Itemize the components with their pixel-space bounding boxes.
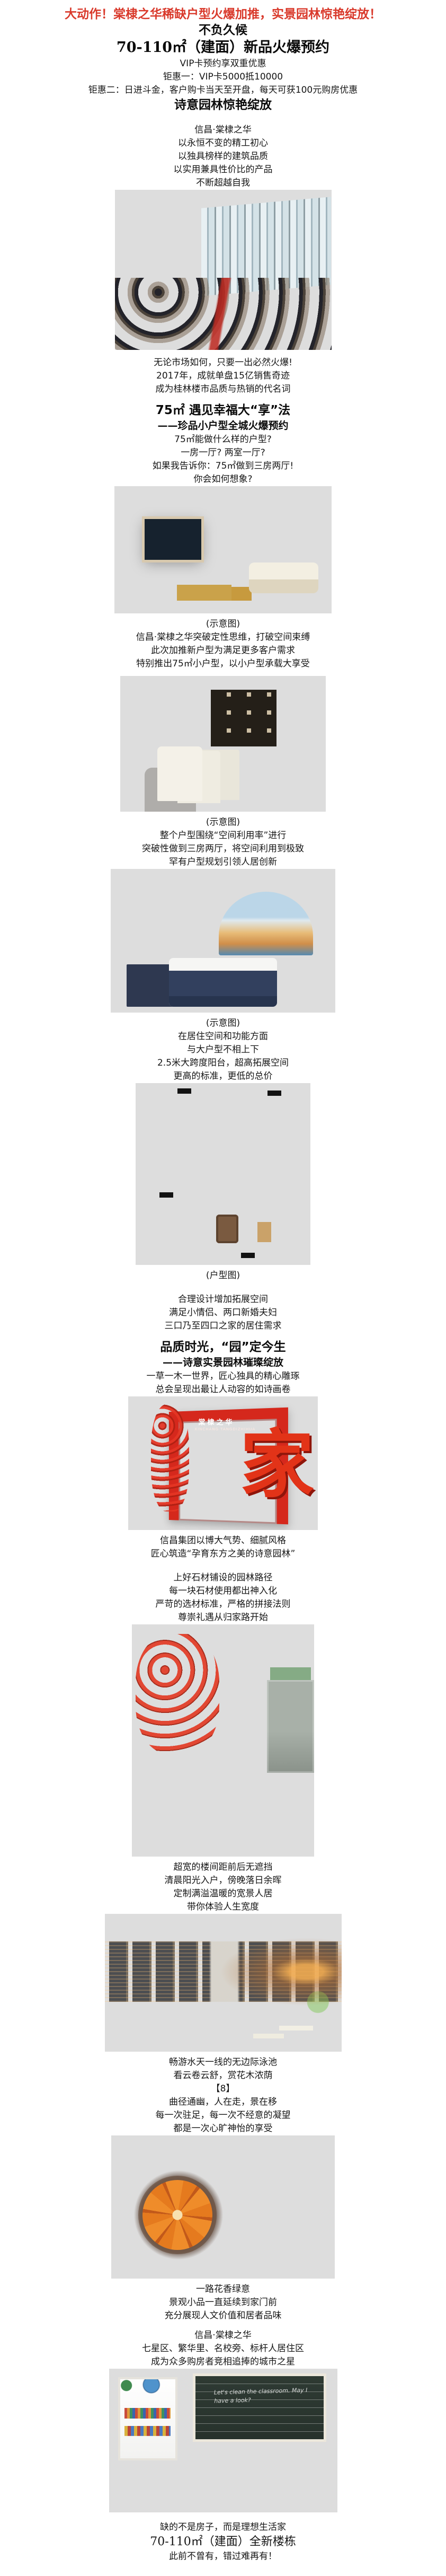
- spacer: [0, 1857, 446, 1861]
- body-line-area: 70-110㎡（建面）全新楼栋: [0, 2534, 446, 2550]
- body-line: 匠心筑造“孕育东方之美的诗意园林”: [0, 1548, 446, 1561]
- body-line: 清晨阳光入户，傍晚落日余晖: [0, 1874, 446, 1887]
- spacer: [0, 1333, 446, 1339]
- body-line: 都是一次心旷神怡的享受: [0, 2122, 446, 2135]
- photo-aerial-pool[interactable]: [111, 2135, 335, 2279]
- heading-75-enjoy: 75㎡ 遇见幸福大“享”法: [0, 402, 446, 418]
- body-line: 不断超越自我: [0, 177, 446, 190]
- spacer: [0, 1265, 446, 1269]
- body-line: 定制满溢温暖的宽景人居: [0, 1887, 446, 1901]
- image-caption: (示意图): [0, 1017, 446, 1030]
- body-line: 更高的标准，更低的总价: [0, 1070, 446, 1083]
- body-line: 钜惠一：VIP卡5000抵10000: [0, 71, 446, 84]
- body-line: 信昌·棠棣之华: [0, 2329, 446, 2342]
- body-line: 每一块石材使用都出神入化: [0, 1585, 446, 1598]
- body-line: 七星区、繁华里、名校旁、标杆人居住区: [0, 2342, 446, 2355]
- spacer: [0, 1282, 446, 1293]
- spacer: [0, 350, 446, 356]
- photo-garden-path[interactable]: [132, 1624, 314, 1857]
- body-line: 此次加推新户型为满足更多客户需求: [0, 644, 446, 657]
- spacer: [0, 1561, 446, 1571]
- headline-main: 大动作！棠棣之华稀缺户型火爆加推，实景园林惊艳绽放！: [0, 6, 446, 22]
- body-line: 2.5米大跨度阳台，超高拓展空间: [0, 1057, 446, 1070]
- heading-wait: 不负久候: [0, 22, 446, 38]
- photo-floor-plan[interactable]: [136, 1083, 310, 1265]
- spacer: [0, 113, 446, 124]
- photo-dining-room[interactable]: [120, 676, 326, 812]
- body-line: 景观小品一直延续到家门前: [0, 2296, 446, 2309]
- body-line: 严苛的选材标准，严格的拼接法则: [0, 1598, 446, 1611]
- body-line: 信昌集团以博大气势、细腻风格: [0, 1534, 446, 1548]
- body-line: 一路花香绿意: [0, 2283, 446, 2296]
- body-line: 上好石材铺设的园林路径: [0, 1571, 446, 1585]
- photo-sales-center[interactable]: [115, 190, 332, 350]
- body-line: 三口乃至四口之家的居住需求: [0, 1320, 446, 1333]
- photo-pool-dusk[interactable]: [105, 1914, 342, 2052]
- body-line: 尊崇礼遇从归家路开始: [0, 1611, 446, 1624]
- body-line: 超宽的楼间距前后无遮挡: [0, 1861, 446, 1874]
- body-line: 如果我告诉你：75㎡做到三房两厅!: [0, 460, 446, 473]
- image-caption: (示意图): [0, 816, 446, 829]
- body-line: 整个户型围绕“空间利用率”进行: [0, 829, 446, 842]
- spacer: [0, 396, 446, 402]
- body-line: 75㎡能做什么样的户型?: [0, 433, 446, 446]
- photo-red-gate[interactable]: 棠棣之华XINCHANG TANGDIZHIHUA家: [128, 1396, 318, 1530]
- body-line: 曲径通幽，人在走，景在移: [0, 2096, 446, 2109]
- subheading-garden-bloom: ——诗意实景园林璀璨绽放: [0, 1355, 446, 1370]
- body-line: VIP卡预约享双重优惠: [0, 57, 446, 71]
- image-caption: (户型图): [0, 1269, 446, 1282]
- spacer: [0, 1013, 446, 1017]
- body-line: 一房一厅? 两室一厅?: [0, 446, 446, 460]
- body-line: 2017年，成就单盘15亿销售奇迹: [0, 370, 446, 383]
- body-line: 【8】: [0, 2082, 446, 2096]
- body-line: 看云卷云舒，赏花木浓荫: [0, 2069, 446, 2082]
- blackboard-chalk-text: Let's clean the classroom. May I have a …: [213, 2386, 314, 2406]
- spacer: [0, 671, 446, 676]
- heading-garden-bloom: 诗意园林惊艳绽放: [0, 97, 446, 113]
- body-line: 钜惠二：日进斗金，客户购卡当天至开盘，每天可获100元购房优惠: [0, 84, 446, 97]
- spacer: [0, 1530, 446, 1534]
- subheading-small-unit: ——珍品小户型全城火爆预约: [0, 418, 446, 433]
- body-line: 合理设计增加拓展空间: [0, 1293, 446, 1306]
- body-line: 罕有户型规划引领人居创新: [0, 856, 446, 869]
- body-line: 以实用兼具性价比的产品: [0, 163, 446, 177]
- body-line: 一草一木一世界，匠心独具的精心雕琢: [0, 1370, 446, 1383]
- photo-classroom[interactable]: Let's clean the classroom. May I have a …: [109, 2369, 337, 2512]
- body-line: 以独具榜样的建筑品质: [0, 150, 446, 163]
- heading-area-preorder: 70-110㎡（建面）新品火爆预约: [0, 38, 446, 57]
- image-caption: (示意图): [0, 618, 446, 631]
- body-line: 总会呈现出最让人动容的如诗画卷: [0, 1383, 446, 1396]
- spacer: [0, 2279, 446, 2283]
- body-line: 畅游水天一线的无边际泳池: [0, 2056, 446, 2069]
- body-line: 此前不曾有，错过难再有！: [0, 2550, 446, 2563]
- spacer: [0, 2512, 446, 2521]
- body-line: 信昌·棠棣之华: [0, 124, 446, 137]
- body-line: 每一次驻足，每一次不经意的凝望: [0, 2109, 446, 2122]
- body-line: 充分展现人文价值和居者品味: [0, 2309, 446, 2323]
- body-line: 突破性做到三房两厅，将空间利用到极致: [0, 842, 446, 856]
- spacer: [0, 613, 446, 618]
- spacer: [0, 812, 446, 816]
- body-line: 特别推出75㎡小户型，以小户型承载大享受: [0, 657, 446, 671]
- body-line: 缺的不是房子，而是理想生活家: [0, 2521, 446, 2534]
- spacer: [0, 2052, 446, 2056]
- body-line: 以永恒不变的精工初心: [0, 137, 446, 150]
- body-line: 与大户型不相上下: [0, 1043, 446, 1057]
- body-line: 满足小情侣、两口新婚夫妇: [0, 1306, 446, 1320]
- article: 大动作！棠棣之华稀缺户型火爆加推，实景园林惊艳绽放！不负久候70-110㎡（建面…: [0, 0, 446, 2563]
- body-line: 成为桂林楼市品质与热销的代名词: [0, 383, 446, 396]
- body-line: 带你体验人生宽度: [0, 1901, 446, 1914]
- body-line: 无论市场如何，只要一出必然火爆!: [0, 356, 446, 370]
- body-line: 在居住空间和功能方面: [0, 1030, 446, 1043]
- gate-sign-text: 棠棣之华: [198, 1417, 234, 1427]
- gate-jia-character: 家: [240, 1428, 314, 1502]
- spacer: [0, 2323, 446, 2329]
- heading-quality-time: 品质时光，“园”定今生: [0, 1339, 446, 1355]
- photo-living-room[interactable]: [114, 486, 332, 613]
- photo-bedroom[interactable]: [111, 869, 335, 1013]
- body-line: 成为众多购房者竞相追捧的城市之星: [0, 2355, 446, 2369]
- body-line: 你会如何想象?: [0, 473, 446, 486]
- body-line: 信昌·棠棣之华突破定性思维，打破空间束缚: [0, 631, 446, 644]
